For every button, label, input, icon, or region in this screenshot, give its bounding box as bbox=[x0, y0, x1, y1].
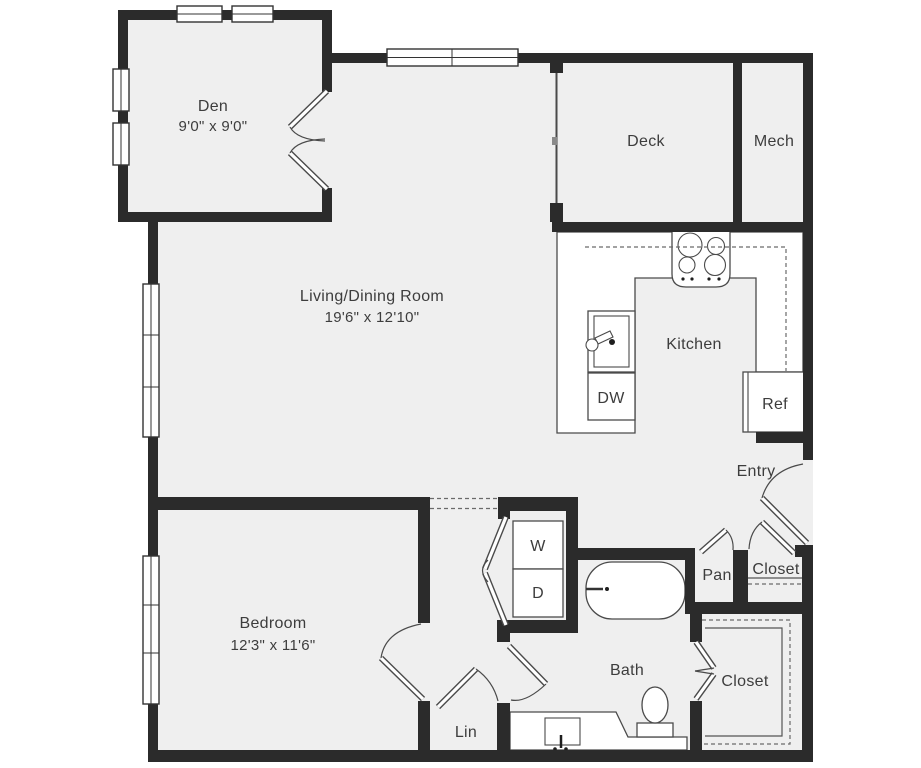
dishwasher-label: DW bbox=[597, 390, 625, 407]
linen-label: Lin bbox=[455, 724, 477, 741]
kitchen-label: Kitchen bbox=[666, 336, 721, 353]
entry-label: Entry bbox=[737, 463, 776, 480]
washer-label: W bbox=[530, 538, 546, 555]
bedroom-dims: 12'3" x 11'6" bbox=[230, 637, 315, 654]
bath-label: Bath bbox=[610, 662, 644, 679]
entry-closet-label: Closet bbox=[752, 561, 799, 578]
den-label: Den bbox=[198, 98, 228, 115]
deck-label: Deck bbox=[627, 133, 665, 150]
entry-door-gap bbox=[803, 460, 813, 545]
floorplan-svg: Den 9'0" x 9'0" Living/Dining Room 19'6"… bbox=[0, 0, 921, 768]
burner-icon bbox=[678, 233, 702, 257]
mech-label: Mech bbox=[754, 133, 794, 150]
pantry-label: Pan bbox=[702, 567, 731, 584]
dryer-label: D bbox=[532, 585, 544, 602]
floorplan-canvas: Den 9'0" x 9'0" Living/Dining Room 19'6"… bbox=[0, 0, 921, 768]
walkin-closet-label: Closet bbox=[721, 673, 768, 690]
toilet-tank bbox=[637, 723, 673, 737]
refrigerator-label: Ref bbox=[762, 396, 788, 413]
den-dims: 9'0" x 9'0" bbox=[179, 118, 248, 135]
burner-icon bbox=[705, 255, 726, 276]
living-label: Living/Dining Room bbox=[300, 288, 444, 305]
living-dims: 19'6" x 12'10" bbox=[325, 309, 420, 326]
vanity-sink-icon bbox=[545, 718, 580, 745]
bathtub-icon bbox=[586, 562, 685, 619]
burner-icon bbox=[708, 238, 725, 255]
burner-icon bbox=[679, 257, 695, 273]
toilet-icon bbox=[642, 687, 668, 723]
bedroom-label: Bedroom bbox=[239, 615, 306, 632]
